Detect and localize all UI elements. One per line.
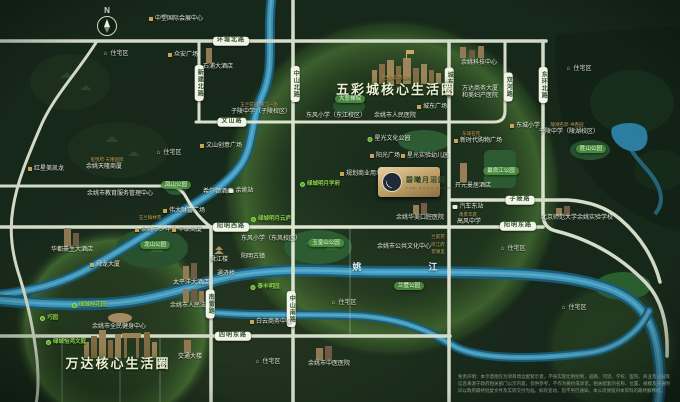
map-label-road-yangming-west: 阳明西路 bbox=[213, 223, 249, 232]
house-icon bbox=[156, 151, 161, 156]
map-label-text: 余姚站 bbox=[235, 188, 253, 195]
map-label-kaiyuan-hotel: 开元曼居酒店 bbox=[455, 183, 491, 190]
map-label-text: 大悲禅院 bbox=[339, 96, 361, 102]
building-icon bbox=[163, 209, 167, 213]
project-title: 碧曦月沼园 bbox=[406, 175, 451, 185]
map-label-weida-wealth-plaza: 伟大财富广场 bbox=[163, 208, 205, 215]
map-label-shunlong-tower: 舜龙大厦 bbox=[90, 262, 120, 269]
map-label-dental-hospital: 余姚华美口腔医院 bbox=[396, 215, 444, 222]
map-label-taifeng-mingyuan: 泰丰明园 bbox=[250, 284, 279, 290]
map-label-longshan-park: 龙山公园 bbox=[140, 241, 170, 249]
map-label-gold-hanlin: 玉兰翰林苑 bbox=[139, 216, 162, 221]
map-label-text: 东城小学 bbox=[516, 123, 540, 130]
map-label-pacific-hotel: 太平洋大酒店 bbox=[173, 280, 209, 287]
map-label-gold-stack: 兰庭苑 听江府 望湖里 bbox=[431, 233, 445, 256]
map-label-text: 和美妇产医院 bbox=[462, 93, 498, 100]
map-label-text: 姚 bbox=[352, 263, 361, 273]
map-label-text: 兰庭苑 听江府 望湖里 bbox=[431, 233, 445, 256]
map-label-text: 兰墅公园 bbox=[398, 283, 420, 289]
map-label-dabei-temple: 大悲禅院 bbox=[335, 95, 365, 103]
map-label-text: 通济桥 bbox=[217, 271, 235, 278]
map-label-planned-commercial: 规划商业用地 bbox=[340, 171, 382, 178]
map-label-text: 泰丰明园 bbox=[257, 284, 279, 290]
map-label-text: 太平洋大酒店 bbox=[173, 280, 209, 287]
leaf-icon bbox=[40, 316, 45, 321]
map-label-fengshan-park: 凤山公园 bbox=[161, 181, 191, 189]
map-label-text: 江 bbox=[428, 263, 437, 273]
map-label-text: 子陵路 bbox=[509, 197, 530, 204]
building-icon bbox=[28, 167, 32, 171]
map-label-zuiliangjiang-park: 最良江公园 bbox=[483, 167, 519, 175]
map-label-tongji-bridge: 通济桥 bbox=[217, 271, 235, 278]
map-label-yuyao-station: 余姚站 bbox=[228, 188, 253, 195]
map-label-text: 华都豪生大酒店 bbox=[51, 247, 93, 254]
map-label-text: 住宅区 bbox=[507, 246, 525, 253]
house-icon bbox=[103, 52, 108, 57]
compass: N bbox=[96, 6, 118, 36]
map-label-road-siming-east: 四明东路 bbox=[215, 332, 251, 341]
map-label-road-nanlei: 南雷路 bbox=[206, 290, 215, 319]
map-label-text: 阳明西路 bbox=[217, 224, 245, 231]
map-label-text: 住宅区 bbox=[110, 51, 128, 58]
map-label-text: 星光实验幼儿园 bbox=[407, 153, 449, 160]
map-label-residential-2: 住宅区 bbox=[566, 66, 591, 73]
map-label-text: 凤山公园 bbox=[165, 182, 187, 188]
map-label-text: 东风小学（东风校区） bbox=[241, 236, 301, 243]
map-label-text: 绿城明月云庐 bbox=[258, 216, 291, 222]
map-label-shengshan-park: 胜山公园 bbox=[576, 145, 606, 153]
map-label-shunjiang-tower: 舜江楼 bbox=[210, 257, 228, 264]
map-label-text: 余姚市教育服务管理中心 bbox=[87, 191, 153, 198]
map-label-text: 东环北路 bbox=[540, 71, 547, 99]
map-label-xingguang-culture-park: 星光文化公园 bbox=[367, 136, 410, 143]
map-label-text: 阳明古镇 bbox=[241, 254, 265, 261]
map-label-road-donghuan-north: 东环北路 bbox=[539, 67, 548, 103]
leaf-icon bbox=[250, 285, 255, 290]
map-label-text: 中塑国际会展中心 bbox=[155, 16, 203, 23]
map-label-road-huancheng-north: 环城北路 bbox=[213, 37, 249, 46]
map-label-hongxing-meikailong: 红星美凯龙 bbox=[28, 166, 64, 173]
map-label-bnu-yuyao-school: 北京师范大学余姚实验学校 bbox=[541, 215, 613, 222]
map-label-text: 住宅区 bbox=[573, 66, 591, 73]
building-icon bbox=[172, 228, 176, 232]
map-label-xingguang-kindergarten: 星光实验幼儿园 bbox=[401, 153, 449, 160]
map-label-east-bus-station: 汽车东站 bbox=[452, 204, 483, 211]
map-label-text: 星光文化公园 bbox=[374, 136, 410, 143]
house-icon bbox=[561, 306, 566, 311]
map-label-residential-4: 住宅区 bbox=[500, 246, 525, 253]
map-label-text: 住宅区 bbox=[338, 300, 356, 307]
map-label-text: 文山路 bbox=[221, 119, 242, 126]
map-label-text: 石浦大酒店 bbox=[203, 64, 233, 71]
map-label-youth-palace: 余姚市少年宫 bbox=[135, 227, 177, 234]
map-label-gold-wucai: 世纪城·玥珑湾 bbox=[383, 76, 412, 81]
map-label-wanda-title: 万达核心生活圈 bbox=[65, 357, 170, 371]
building-icon bbox=[454, 139, 458, 143]
map-label-text: 万达核心生活圈 bbox=[65, 357, 170, 371]
map-label-text: 红星美凯龙 bbox=[34, 166, 64, 173]
map-label-text: 余姚市人民医院 bbox=[374, 113, 416, 120]
map-label-text: 陵湖名邸·书香园 bbox=[551, 123, 584, 128]
map-label-text: 万达商务大厦 bbox=[462, 86, 498, 93]
map-label-greentown-xuefu: 绿城明月学府 bbox=[300, 181, 340, 187]
map-label-text: 白云商务中心 bbox=[256, 319, 292, 326]
house-icon bbox=[566, 67, 571, 72]
map-label-zhongsu-exhibition-center: 中塑国际会展中心 bbox=[149, 16, 203, 23]
map-label-text: 龙山公园 bbox=[144, 242, 166, 248]
map-label-gold-tianlong: 玺悦府·天隆国际 bbox=[91, 158, 124, 163]
train-icon bbox=[228, 189, 233, 193]
map-label-wenshan-creative-plaza: 文山创意广场 bbox=[200, 143, 242, 150]
map-label-text: 子陵中学（子陵校区） bbox=[231, 109, 291, 116]
map-label-text: 绿城怡鸿文庭 bbox=[53, 339, 86, 345]
map-label-text: 四明东路 bbox=[219, 333, 247, 340]
map-label-text: 规划商业用地 bbox=[346, 171, 382, 178]
map-label-text: 城东广场 bbox=[423, 104, 447, 111]
map-label-road-shuanghe: 双河路 bbox=[504, 73, 513, 102]
map-label-residential-1: 住宅区 bbox=[103, 51, 128, 58]
map-label-traffic-building: 交通大楼 bbox=[178, 354, 202, 361]
map-label-public-culture-center: 余姚市公共文化中心 bbox=[377, 244, 431, 251]
map-label-text: 玉兰翰林苑 bbox=[139, 216, 162, 221]
map-label-text: 巧园 bbox=[47, 315, 58, 321]
map-label-shipu-hotel: 石浦大酒店 bbox=[203, 64, 233, 71]
map-label-text: 中山北路 bbox=[292, 70, 299, 98]
leaf-icon bbox=[367, 137, 372, 142]
house-icon bbox=[500, 247, 505, 252]
map-label-river-yao: 姚 bbox=[352, 263, 361, 273]
bus-icon bbox=[452, 205, 457, 209]
map-label-text: 南雷路 bbox=[207, 294, 214, 315]
map-label-text: 新建北路 bbox=[196, 69, 203, 97]
map-label-tianlong-building: 余姚天隆商厦 bbox=[86, 164, 122, 171]
map-label-chengdong-plaza: 城东广场 bbox=[417, 104, 447, 111]
building-icon bbox=[135, 228, 139, 232]
map-label-text: 汽车东站 bbox=[459, 204, 483, 211]
map-label-text: 玺悦府·天隆国际 bbox=[91, 158, 124, 163]
building-icon bbox=[149, 17, 153, 21]
location-map: 中塑国际会展中心住宅区众安广场石浦大酒店环城北路新建北路中山北路城东路双河路东环… bbox=[0, 0, 680, 402]
map-label-gold-ziling1: 玉兰花园·陵江一品 bbox=[240, 103, 278, 108]
map-label-text: 余姚市公共文化中心 bbox=[377, 244, 431, 251]
map-label-xinshidai-mall: 新时代购物广场 bbox=[454, 138, 502, 145]
map-label-greentown-guihuayuan: 绿城桂花园 bbox=[72, 302, 107, 308]
map-label-text: 最良江公园 bbox=[487, 168, 515, 174]
map-label-residential-5: 住宅区 bbox=[331, 300, 356, 307]
map-label-gaofeng-middle-school: 高风中学 bbox=[457, 219, 481, 226]
map-label-residential-3: 住宅区 bbox=[156, 150, 181, 157]
map-label-text: 余姚科技中心 bbox=[461, 60, 497, 67]
map-label-text: 胜山公园 bbox=[580, 146, 602, 152]
map-label-tcm-hospital: 余姚市中医医院 bbox=[308, 361, 350, 368]
map-label-text: 甬景华庭 bbox=[459, 213, 477, 218]
moon-logo-icon bbox=[382, 172, 402, 192]
map-label-yuhuangshan-park: 玉皇山公园 bbox=[308, 239, 344, 247]
house-icon bbox=[331, 301, 336, 306]
map-label-wanda-business-tower: 万达商务大厦 bbox=[462, 86, 498, 93]
map-label-text: 余姚华美口腔医院 bbox=[396, 215, 444, 222]
map-label-gold-ziling2: 陵湖名邸·书香园 bbox=[551, 123, 584, 128]
project-logo-text: 碧曦月沼园 YUE ZHAO YUAN bbox=[406, 175, 451, 190]
map-label-river-jiang: 江 bbox=[428, 263, 437, 273]
map-label-text: 文山创意广场 bbox=[206, 143, 242, 150]
map-label-text: 余姚市全民健身中心 bbox=[92, 324, 146, 331]
building-icon bbox=[417, 105, 421, 109]
map-labels-layer: 中塑国际会展中心住宅区众安广场石浦大酒店环城北路新建北路中山北路城东路双河路东环… bbox=[0, 0, 680, 402]
map-label-yuyao-tech-center: 余姚科技中心 bbox=[461, 60, 497, 67]
map-label-residential-7: 住宅区 bbox=[561, 305, 586, 312]
map-label-text: 绿城明月学府 bbox=[307, 181, 340, 187]
building-icon bbox=[510, 124, 514, 128]
map-label-text: 世纪城·玥珑湾 bbox=[383, 76, 412, 81]
map-label-text: 阳明东路 bbox=[504, 223, 532, 230]
map-label-text: 余姚市中医医院 bbox=[308, 361, 350, 368]
map-label-greentown-yihong: 绿城怡鸿文庭 bbox=[46, 339, 86, 345]
map-label-text: 东风小学（东江校区） bbox=[306, 113, 366, 120]
building-icon bbox=[250, 320, 254, 324]
map-label-gold-gaofeng: 甬景华庭 bbox=[459, 213, 477, 218]
map-label-text: 开元曼居酒店 bbox=[455, 183, 491, 190]
map-label-text: 余姚天隆商厦 bbox=[86, 164, 122, 171]
building-icon bbox=[340, 172, 344, 176]
map-label-ziling-middle-school-1: 子陵中学（子陵校区） bbox=[231, 109, 291, 116]
leaf-icon bbox=[300, 182, 305, 187]
map-label-maternity-hospital: 和美妇产医院 bbox=[462, 93, 498, 100]
map-label-text: 华联商厦 bbox=[178, 227, 202, 234]
project-subtitle: YUE ZHAO YUAN bbox=[406, 186, 451, 190]
map-label-road-yangming-east: 阳明东路 bbox=[500, 222, 536, 231]
map-label-education-center: 余姚市教育服务管理中心 bbox=[87, 191, 153, 198]
map-label-text: 子陵中学（陵湖校区） bbox=[539, 129, 599, 136]
map-label-gold-dongcheng: 东城名苑 bbox=[462, 132, 480, 137]
map-label-text: 东城名苑 bbox=[462, 132, 480, 137]
map-label-baiyun-business-center: 白云商务中心 bbox=[250, 319, 292, 326]
map-label-text: 环城北路 bbox=[217, 38, 245, 45]
map-label-qiaoyuan: 巧园 bbox=[40, 315, 58, 321]
map-label-text: 伟大财富广场 bbox=[169, 208, 205, 215]
map-label-greentown-yunlu: 绿城明月云庐 bbox=[251, 216, 291, 222]
project-logo-card: 碧曦月沼园 YUE ZHAO YUAN bbox=[378, 167, 440, 197]
map-label-text: 北京师范大学余姚实验学校 bbox=[541, 215, 613, 222]
map-label-road-zhongshan-north: 中山北路 bbox=[291, 66, 300, 102]
map-label-text: 玉兰花园·陵江一品 bbox=[240, 103, 278, 108]
leaf-icon bbox=[72, 303, 77, 308]
map-label-zhongan-plaza: 众安广场 bbox=[168, 52, 198, 59]
leaf-icon bbox=[46, 340, 51, 345]
map-label-peoples-hospital: 余姚市人民医院 bbox=[374, 113, 416, 120]
map-label-dongfeng-primary-dongfeng: 东风小学（东风校区） bbox=[241, 236, 301, 243]
house-icon bbox=[255, 360, 260, 365]
map-label-road-ziling: 子陵路 bbox=[505, 196, 534, 205]
map-label-road-xinjian-north: 新建北路 bbox=[195, 65, 204, 101]
map-label-yangguang-plaza: 阳光广场 bbox=[370, 153, 400, 160]
map-label-lanshu-park: 兰墅公园 bbox=[394, 282, 424, 290]
map-label-text: 舜江楼 bbox=[210, 257, 228, 264]
map-label-text: 双河路 bbox=[505, 77, 512, 98]
disclaimer-text: 免责声明：本示意图仅为项目周边配套示意，不按实际比例绘制，道路、河流、学校、医院… bbox=[458, 374, 670, 394]
map-label-hualian-building: 华联商厦 bbox=[172, 227, 202, 234]
map-label-fitness-center: 余姚市全民健身中心 bbox=[92, 324, 146, 331]
map-label-text: 住宅区 bbox=[568, 305, 586, 312]
compass-needle-icon bbox=[104, 19, 110, 27]
map-label-text: 玉皇山公园 bbox=[312, 240, 340, 246]
building-icon bbox=[200, 144, 204, 148]
map-label-road-wenshan: 文山路 bbox=[217, 118, 246, 127]
map-label-text: 绿城桂花园 bbox=[79, 302, 107, 308]
map-label-ziling-middle-school-2: 子陵中学（陵湖校区） bbox=[539, 129, 599, 136]
map-label-yangming-old-town: 阳明古镇 bbox=[241, 254, 265, 261]
compass-needle-south bbox=[104, 27, 110, 33]
compass-dial bbox=[97, 16, 117, 36]
building-icon bbox=[168, 53, 172, 57]
map-label-text: 阳光广场 bbox=[376, 153, 400, 160]
building-icon bbox=[370, 154, 374, 158]
leaf-icon bbox=[251, 217, 256, 222]
map-label-text: 交通大楼 bbox=[178, 354, 202, 361]
map-label-text: 住宅区 bbox=[262, 359, 280, 366]
compass-north-label: N bbox=[96, 6, 118, 15]
map-label-text: 新时代购物广场 bbox=[460, 138, 502, 145]
map-label-huadu-hotel: 华都豪生大酒店 bbox=[51, 247, 93, 254]
map-label-text: 住宅区 bbox=[163, 150, 181, 157]
map-label-dongfeng-primary-dongjiang: 东风小学（东江校区） bbox=[306, 113, 366, 120]
map-label-text: 众安广场 bbox=[174, 52, 198, 59]
map-label-residential-6: 住宅区 bbox=[255, 359, 280, 366]
map-label-text: 高风中学 bbox=[457, 219, 481, 226]
map-label-dongcheng-primary: 东城小学 bbox=[510, 123, 540, 130]
building-icon bbox=[90, 263, 94, 267]
map-label-text: 舜龙大厦 bbox=[96, 262, 120, 269]
building-icon bbox=[401, 154, 405, 158]
